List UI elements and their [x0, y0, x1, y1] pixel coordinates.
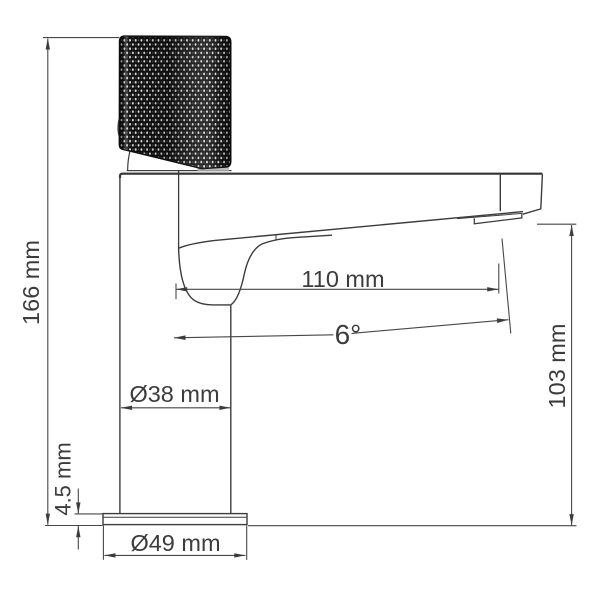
svg-text:Ø49 mm: Ø49 mm	[130, 530, 220, 556]
svg-text:110 mm: 110 mm	[301, 266, 384, 292]
svg-text:166 mm: 166 mm	[18, 240, 44, 325]
svg-text:Ø38 mm: Ø38 mm	[129, 381, 219, 407]
svg-text:4.5 mm: 4.5 mm	[51, 442, 76, 515]
svg-text:6°: 6°	[335, 319, 362, 350]
svg-text:103 mm: 103 mm	[544, 324, 570, 409]
